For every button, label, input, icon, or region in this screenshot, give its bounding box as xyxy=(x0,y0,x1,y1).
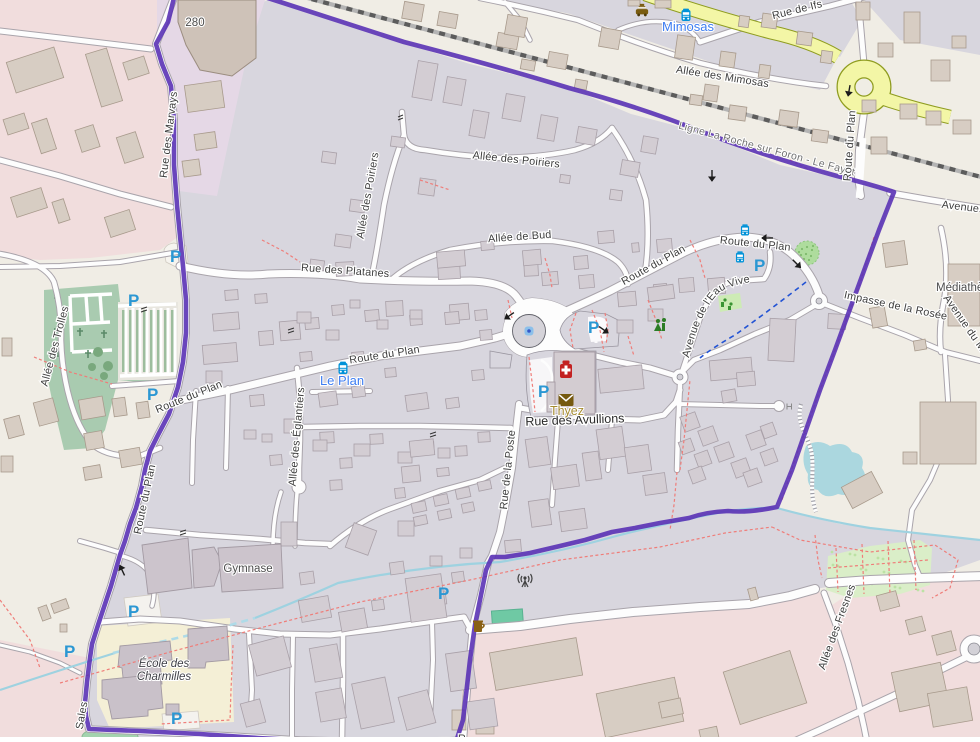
svg-text:Gymnase: Gymnase xyxy=(223,563,272,575)
svg-text:Médiathèque: Médiathèque xyxy=(936,282,980,294)
svg-text:P: P xyxy=(171,709,182,728)
svg-text:Thyez: Thyez xyxy=(550,404,584,418)
svg-text:P: P xyxy=(128,602,139,621)
svg-text:Le Plan: Le Plan xyxy=(320,373,364,388)
svg-text:P: P xyxy=(147,385,158,404)
svg-text:Charmilles: Charmilles xyxy=(137,671,192,683)
svg-text:P: P xyxy=(754,256,765,275)
svg-text:P: P xyxy=(64,642,75,661)
svg-text:Mimosas: Mimosas xyxy=(662,19,715,34)
svg-text:P: P xyxy=(538,382,549,401)
svg-text:École des: École des xyxy=(139,657,190,670)
svg-text:P: P xyxy=(170,247,181,266)
svg-text:P: P xyxy=(128,291,139,310)
svg-text:P: P xyxy=(438,584,449,603)
svg-text:R: R xyxy=(458,733,466,737)
svg-text:280: 280 xyxy=(185,17,204,29)
svg-text:P: P xyxy=(588,318,599,337)
